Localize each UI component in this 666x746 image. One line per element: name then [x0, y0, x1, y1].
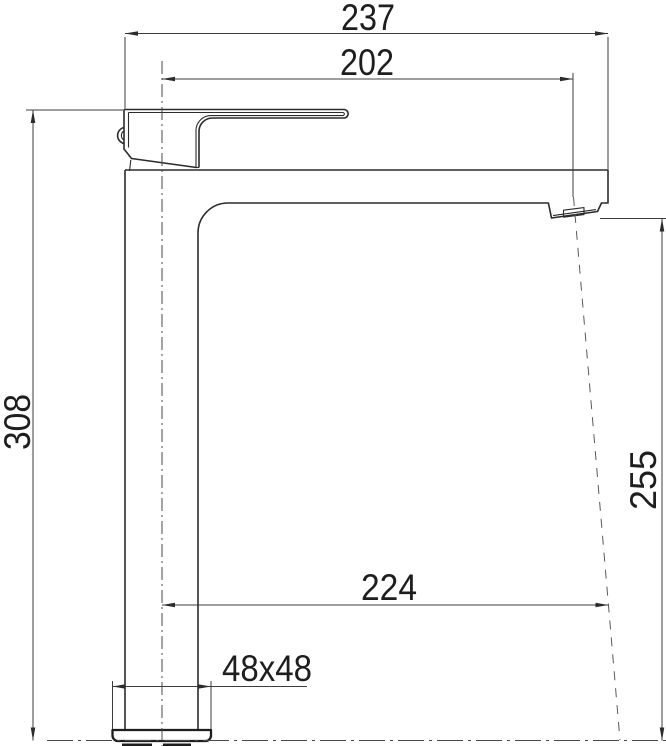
faucet-body-outline: [125, 170, 608, 730]
arrow-stream-reach-left: [162, 603, 175, 608]
arrow-overall-length-left: [125, 31, 138, 36]
technical-drawing-canvas: 237 202 308 255 224 48x48: [0, 0, 666, 746]
arrow-outlet-height-top: [660, 219, 665, 232]
water-stream-dashed-line: [574, 197, 621, 740]
arrow-outlet-height-bottom: [660, 728, 665, 741]
label-base-section: 48x48: [222, 648, 312, 689]
arrow-overall-height-top: [31, 110, 36, 123]
label-overall-height: 308: [0, 394, 38, 450]
label-stream-reach: 224: [361, 567, 417, 608]
arrow-spout-reach-right: [560, 77, 573, 82]
arrow-base-section-left: [113, 684, 126, 689]
arrow-overall-length-right: [595, 31, 608, 36]
arrow-spout-reach-left: [162, 77, 175, 82]
arrow-stream-reach-right: [596, 603, 609, 608]
label-overall-length: 237: [341, 0, 395, 38]
handle-lever-outline: [124, 110, 348, 168]
label-outlet-height: 255: [623, 450, 664, 510]
handle-lever-inner-line: [129, 113, 345, 168]
arrow-overall-height-bottom: [31, 728, 36, 741]
faucet-dimension-drawing: 237 202 308 255 224 48x48: [0, 0, 666, 746]
handle-cap-outline: [124, 110, 197, 168]
arrow-base-section-right: [198, 684, 211, 689]
handle-boss-outer-arc: [118, 128, 124, 144]
label-spout-reach: 202: [340, 42, 394, 83]
